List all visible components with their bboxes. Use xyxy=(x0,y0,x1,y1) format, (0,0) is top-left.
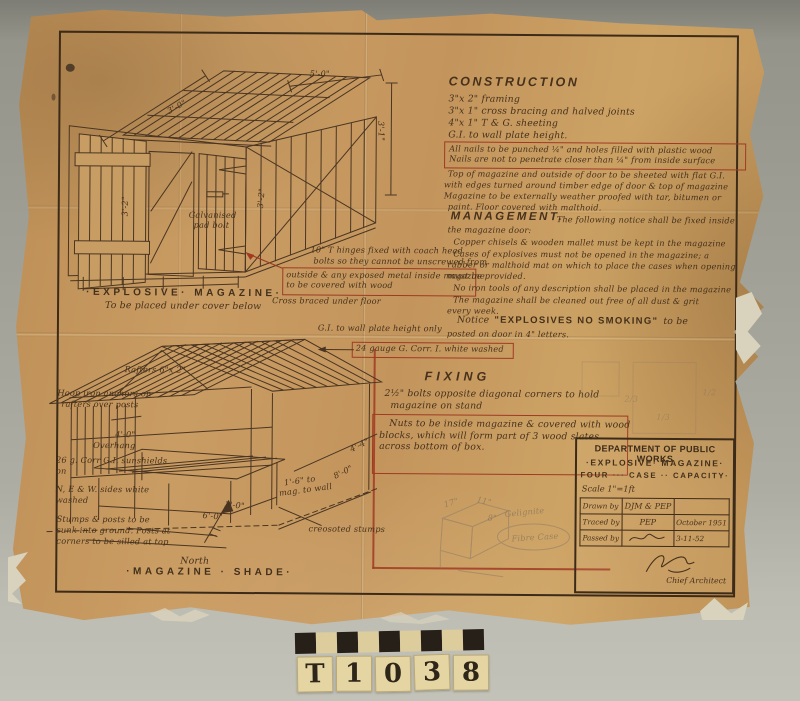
title-block-line1: ·EXPLOSIVE· MAGAZINE· xyxy=(577,457,733,468)
no-smoking-caps: "EXPLOSIVES NO SMOKING" xyxy=(494,315,658,327)
table-row: Drawn by DJM & PEP xyxy=(580,498,729,515)
magazine-title: ·EXPLOSIVE· MAGAZINE· xyxy=(86,287,282,299)
sides-label: washed xyxy=(56,495,89,505)
title-block-table: Drawn by DJM & PEP Traced by PEP October… xyxy=(579,497,730,547)
dim-label: 3'-0" xyxy=(224,499,245,511)
dim-label: 3'-1" xyxy=(376,121,387,142)
nails-note-boxed: All nails to be punched ¼" and holes fil… xyxy=(444,141,746,170)
shade-title: ·MAGAZINE · SHADE· xyxy=(126,566,293,578)
scale-square xyxy=(295,633,316,654)
label-card: T xyxy=(297,656,334,693)
stumps-note: sunk into ground. Posts at xyxy=(56,525,170,536)
hinge-note: 10" T hinges fixed with coach head xyxy=(310,244,463,255)
management-rule: must be provided. xyxy=(447,270,526,281)
label-card: 1 xyxy=(336,656,372,692)
title-block-scale: Scale 1"=1ft xyxy=(582,483,635,493)
scale-square xyxy=(316,632,337,653)
dim-label: 5'-0" xyxy=(310,68,330,78)
photo-label-cards: T 1 0 3 8 xyxy=(297,653,490,692)
construction-item: 4"x 1" T & G. sheeting xyxy=(448,117,558,129)
table-row: Traced by PEP October 1951 xyxy=(580,514,729,531)
title-block: DEPARTMENT OF PUBLIC WORKS ·EXPLOSIVE· M… xyxy=(574,437,735,594)
pencil-rect-sketch xyxy=(632,362,697,434)
hoop-label: rafters over posts xyxy=(61,399,138,410)
no-smoking-notice: Notice "EXPLOSIVES NO SMOKING" to be xyxy=(457,314,688,327)
pencil-rect-sketch xyxy=(581,361,619,396)
fixing-line: magazine on stand xyxy=(390,400,482,412)
chief-architect-label: Chief Architect xyxy=(666,576,726,585)
management-heading: MANAGEMENT. xyxy=(451,210,565,223)
construction-item: G.I. to wall plate height. xyxy=(448,129,567,141)
management-rule: Cases of explosives must not be opened i… xyxy=(453,248,709,260)
pencil-fraction: 1/2 xyxy=(702,387,716,397)
management-intro: the magazine door: xyxy=(448,224,532,235)
scale-square xyxy=(379,631,400,652)
fixing-line: 2½" bolts opposite diagonal corners to h… xyxy=(384,388,599,401)
passed-by-signature xyxy=(622,530,674,546)
construction-item: 3"x 1" cross bracing and halved joints xyxy=(448,105,635,118)
scale-square xyxy=(442,629,463,650)
drawing-sheet: 5'-0" 3'-0" 3'-1" 3'-2" 3'-2" Galvanised… xyxy=(8,5,772,628)
scale-square xyxy=(463,629,484,650)
construction-item: 3"x 2" framing xyxy=(448,93,520,105)
label-card: 3 xyxy=(413,654,450,691)
pencil-fraction: 2/3 xyxy=(624,394,638,404)
dim-label: 3'-2" xyxy=(255,188,267,209)
rafters-label: Rafters 6"x 2" xyxy=(125,364,186,375)
management-intro: The following notice shall be fixed insi… xyxy=(557,214,735,225)
corr26-label: on xyxy=(56,466,67,476)
scale-square xyxy=(400,630,421,651)
photo-of-drawing: { "construction": { "heading": "CONSTRUC… xyxy=(0,0,800,701)
scale-square xyxy=(358,631,379,652)
stumps-note: Stumps & posts to be xyxy=(57,514,150,525)
cross-braced-label: Cross braced under floor xyxy=(272,295,381,306)
construction-heading: CONSTRUCTION xyxy=(449,74,580,89)
management-rule: No iron tools of any description shall b… xyxy=(453,282,731,294)
pad-bolt-label: Galvanised xyxy=(189,210,237,221)
magazine-subtitle: To be placed under cover below xyxy=(105,300,261,313)
dim-label: 6'-0" xyxy=(202,510,223,522)
chief-architect-signature xyxy=(638,550,698,576)
dim-label: 3'-2" xyxy=(120,196,130,216)
pencil-dim: 8" xyxy=(488,513,497,523)
overhang-label: Overhang xyxy=(93,440,135,451)
title-block-line2: FOUR ··· CASE ·· CAPACITY· xyxy=(577,470,733,480)
label-card: 8 xyxy=(453,655,489,691)
pencil-fraction: 1/3 xyxy=(656,412,670,422)
sides-label: N, E & W. sides white xyxy=(56,484,150,495)
overhang-dim: 4'-0" xyxy=(115,429,135,439)
pad-bolt-label: pad bolt xyxy=(194,220,230,230)
photo-scale-bar xyxy=(295,629,484,654)
paper-stain xyxy=(52,94,56,101)
management-rule: The magazine shall be cleaned out free o… xyxy=(453,294,699,306)
fixing-heading: FIXING xyxy=(425,369,491,383)
management-rule: Copper chisels & wooden mallet must be k… xyxy=(453,236,725,248)
table-row: Passed by 3-11-52 xyxy=(580,530,729,547)
corr26-label: 26 g. Corr G.I. sunshields xyxy=(56,455,167,466)
stumps-note: corners to be silled at top xyxy=(56,536,168,547)
no-smoking-notice-2: posted on door in 4" letters. xyxy=(447,328,569,339)
label-card: 0 xyxy=(375,656,412,693)
scale-square xyxy=(421,630,442,651)
scale-square xyxy=(337,632,358,653)
hoop-label: Hoop iron anchors on xyxy=(57,388,151,399)
creosoted-label: creosoted stumps xyxy=(308,523,385,534)
